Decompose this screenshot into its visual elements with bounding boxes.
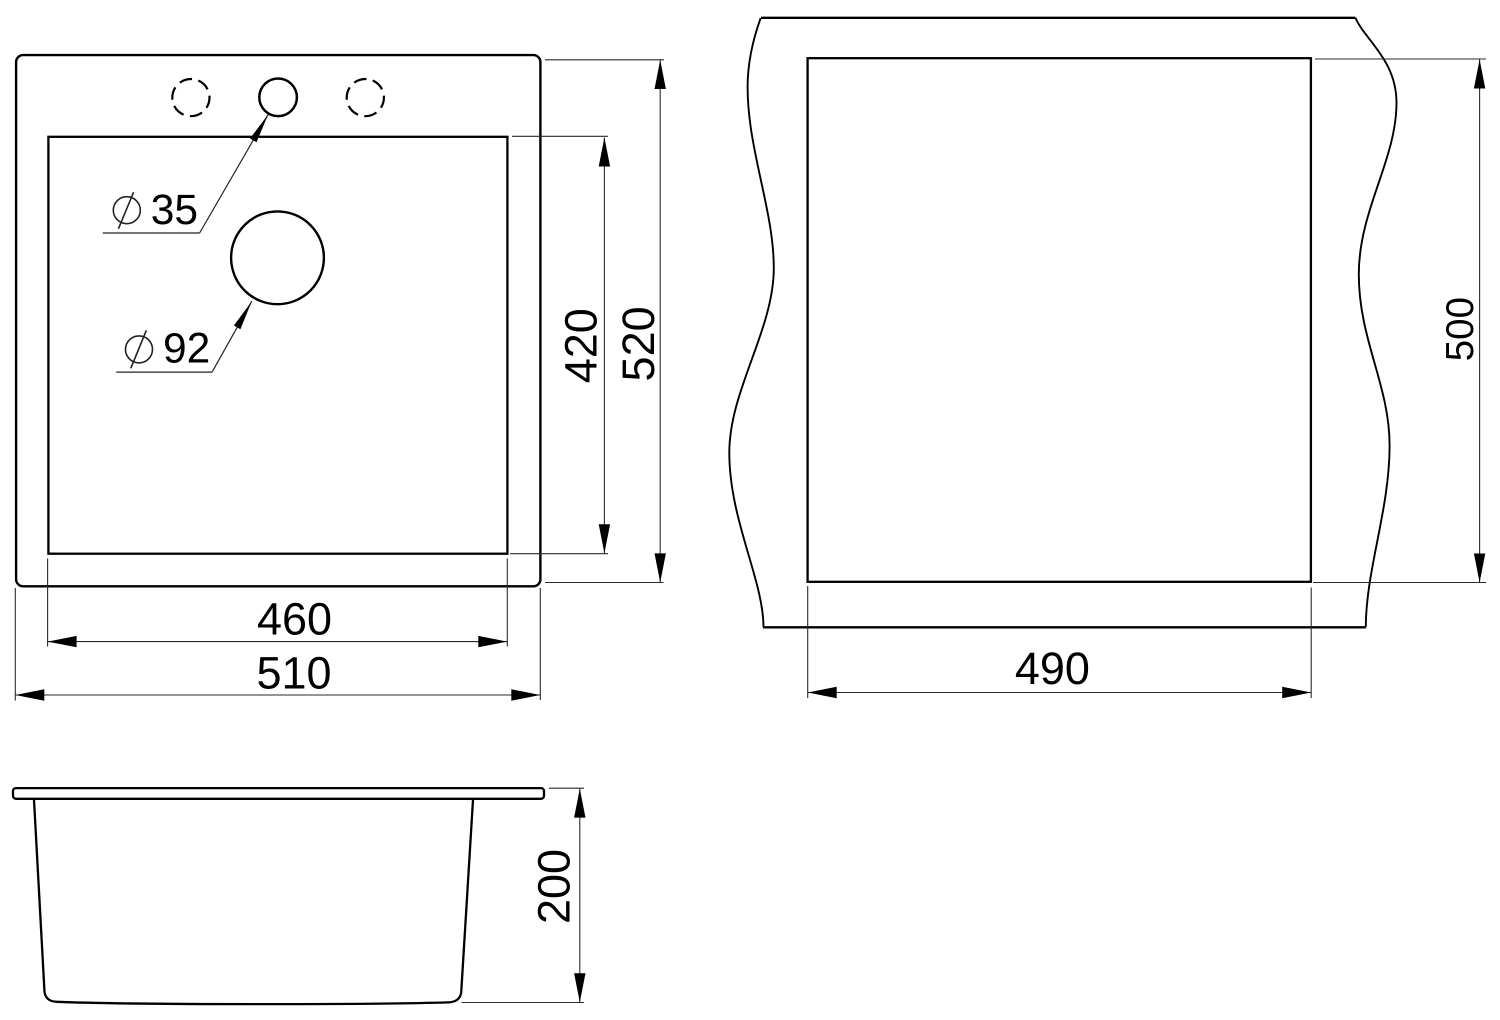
svg-text:490: 490 — [1015, 643, 1090, 694]
svg-text:520: 520 — [613, 306, 664, 381]
svg-text:92: 92 — [163, 326, 210, 373]
svg-text:35: 35 — [151, 187, 198, 234]
svg-text:510: 510 — [256, 647, 331, 698]
svg-text:200: 200 — [529, 849, 580, 924]
svg-text:420: 420 — [556, 308, 607, 383]
svg-text:500: 500 — [1439, 297, 1482, 361]
svg-text:460: 460 — [257, 593, 332, 644]
